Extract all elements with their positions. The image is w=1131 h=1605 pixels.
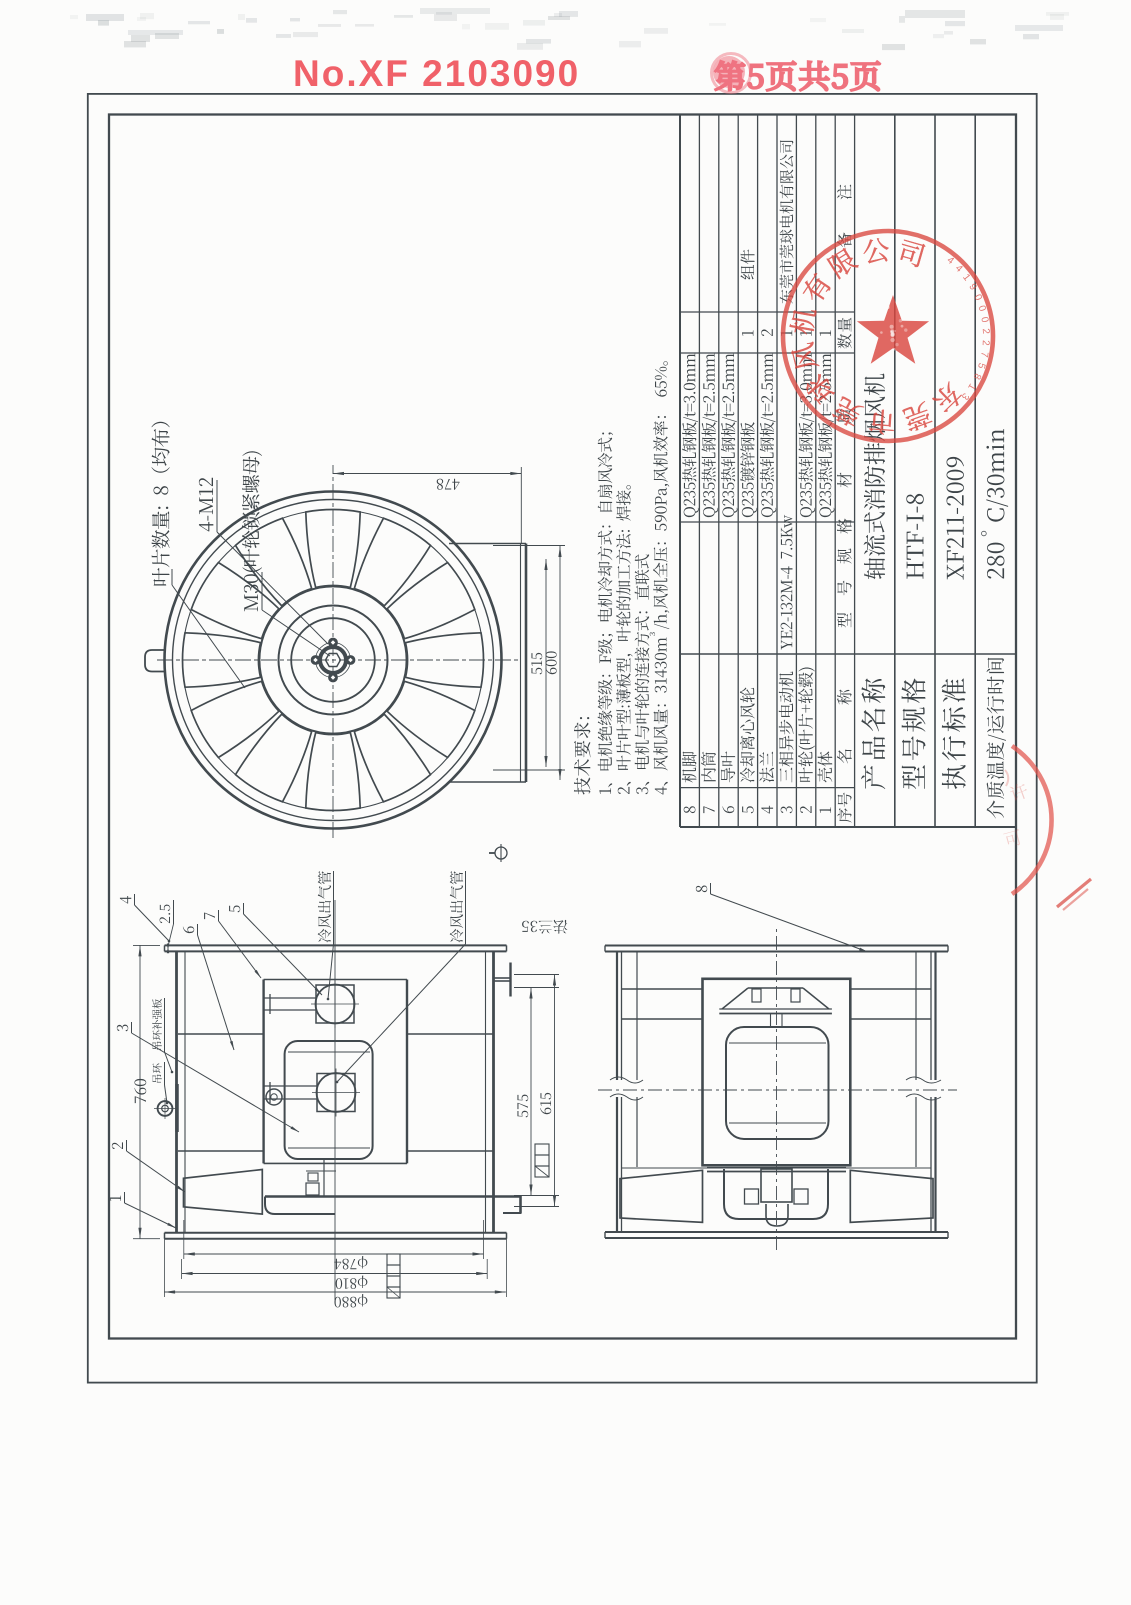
svg-text:7: 7	[978, 351, 990, 359]
svg-text:0: 0	[978, 316, 990, 324]
svg-text:No.XF 2103090: No.XF 2103090	[293, 53, 580, 94]
svg-text:2: 2	[980, 328, 991, 335]
svg-text:0: 0	[971, 293, 984, 303]
svg-text:5: 5	[975, 361, 987, 370]
svg-text:3: 3	[959, 391, 971, 402]
svg-text:9: 9	[966, 282, 979, 293]
svg-text:0: 0	[976, 304, 988, 313]
svg-text:8: 8	[970, 372, 982, 382]
svg-text:4: 4	[945, 255, 957, 267]
svg-text:2: 2	[980, 340, 991, 346]
svg-text:1: 1	[960, 272, 972, 284]
svg-text:4: 4	[953, 263, 965, 275]
